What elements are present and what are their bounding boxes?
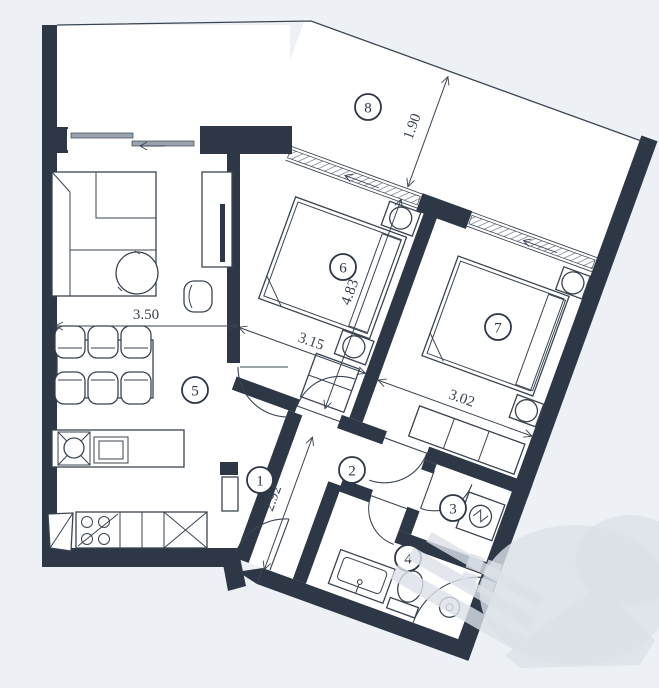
dining-chair [55, 372, 85, 404]
tv-unit [202, 172, 232, 267]
room-label-3: 3 [440, 495, 466, 521]
coffee-table [116, 251, 158, 294]
svg-text:2: 2 [348, 463, 356, 479]
svg-text:5: 5 [191, 383, 199, 399]
svg-text:3: 3 [449, 501, 457, 517]
room-label-8: 8 [355, 94, 381, 120]
svg-text:1: 1 [256, 473, 264, 489]
room-label-6: 6 [330, 254, 356, 280]
dining-chair [121, 372, 151, 404]
floor-plan: 3.15 3.02 4.83 1.90 2.92 [0, 0, 659, 688]
dining-chair [55, 326, 85, 358]
room-label-7: 7 [485, 314, 511, 340]
room-label-5: 5 [182, 377, 208, 403]
dimension-value: 3.50 [133, 307, 159, 323]
entry-cabinet [222, 477, 238, 511]
room-label-2: 2 [339, 457, 365, 483]
dining-chair [121, 326, 151, 358]
kitchen-counter [76, 512, 207, 548]
dining-set [55, 326, 153, 404]
svg-text:7: 7 [494, 320, 502, 336]
room-label-1: 1 [247, 467, 273, 493]
corner-cabinet [48, 513, 73, 551]
svg-text:6: 6 [339, 260, 347, 276]
window-living-room [67, 129, 200, 150]
svg-text:8: 8 [364, 100, 372, 116]
kitchen-island [52, 430, 184, 467]
floor-plan-canvas: 3.15 3.02 4.83 1.90 2.92 [0, 0, 659, 688]
armchair [184, 281, 212, 312]
dining-chair [88, 326, 118, 358]
dining-chair [88, 372, 118, 404]
